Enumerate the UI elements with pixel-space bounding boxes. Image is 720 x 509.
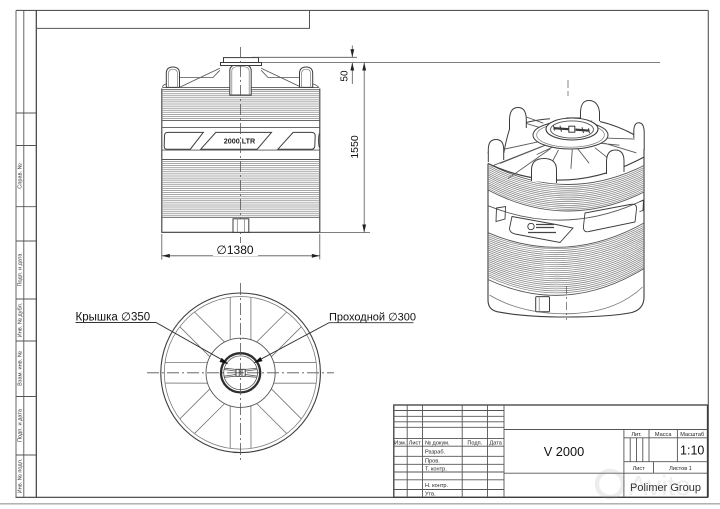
svg-text:Инв. № подл.: Инв. № подл. [18, 458, 24, 493]
svg-text:Т. контр.: Т. контр. [425, 466, 447, 472]
svg-text:Пров.: Пров. [425, 459, 440, 465]
svg-text:Изм.: Изм. [394, 441, 406, 447]
svg-text:Лит.: Лит. [631, 432, 642, 438]
svg-text:Дата: Дата [490, 441, 503, 447]
svg-text:Инв. № дубл.: Инв. № дубл. [18, 302, 24, 337]
svg-text:Подп.: Подп. [467, 441, 482, 447]
svg-text:Н. контр.: Н. контр. [425, 483, 449, 489]
svg-text:Справ. №: Справ. № [18, 163, 24, 188]
svg-text:V 2000: V 2000 [544, 444, 585, 459]
svg-text:Масштаб: Масштаб [680, 432, 704, 438]
svg-text:1550: 1550 [349, 135, 361, 159]
svg-text:Подп. и дата: Подп. и дата [18, 408, 24, 442]
svg-text:2000 LTR: 2000 LTR [224, 136, 256, 145]
svg-text:50: 50 [340, 70, 351, 82]
svg-text:1:10: 1:10 [680, 444, 704, 458]
svg-text:Лист: Лист [409, 441, 422, 447]
svg-text:Разраб.: Разраб. [425, 450, 446, 456]
svg-text:Масса: Масса [655, 432, 672, 438]
svg-text:Взам. инв. №: Взам. инв. № [18, 351, 24, 386]
svg-text:№ докум.: № докум. [425, 441, 450, 447]
svg-text:Подп. и дата: Подп. и дата [18, 253, 24, 287]
svg-text:Утв.: Утв. [425, 492, 436, 498]
svg-text:∅1380: ∅1380 [216, 243, 253, 257]
svg-text:Проходной ∅300: Проходной ∅300 [329, 312, 416, 324]
svg-text:Крышка ∅350: Крышка ∅350 [76, 312, 151, 324]
svg-text:Polimer Group: Polimer Group [630, 482, 701, 494]
